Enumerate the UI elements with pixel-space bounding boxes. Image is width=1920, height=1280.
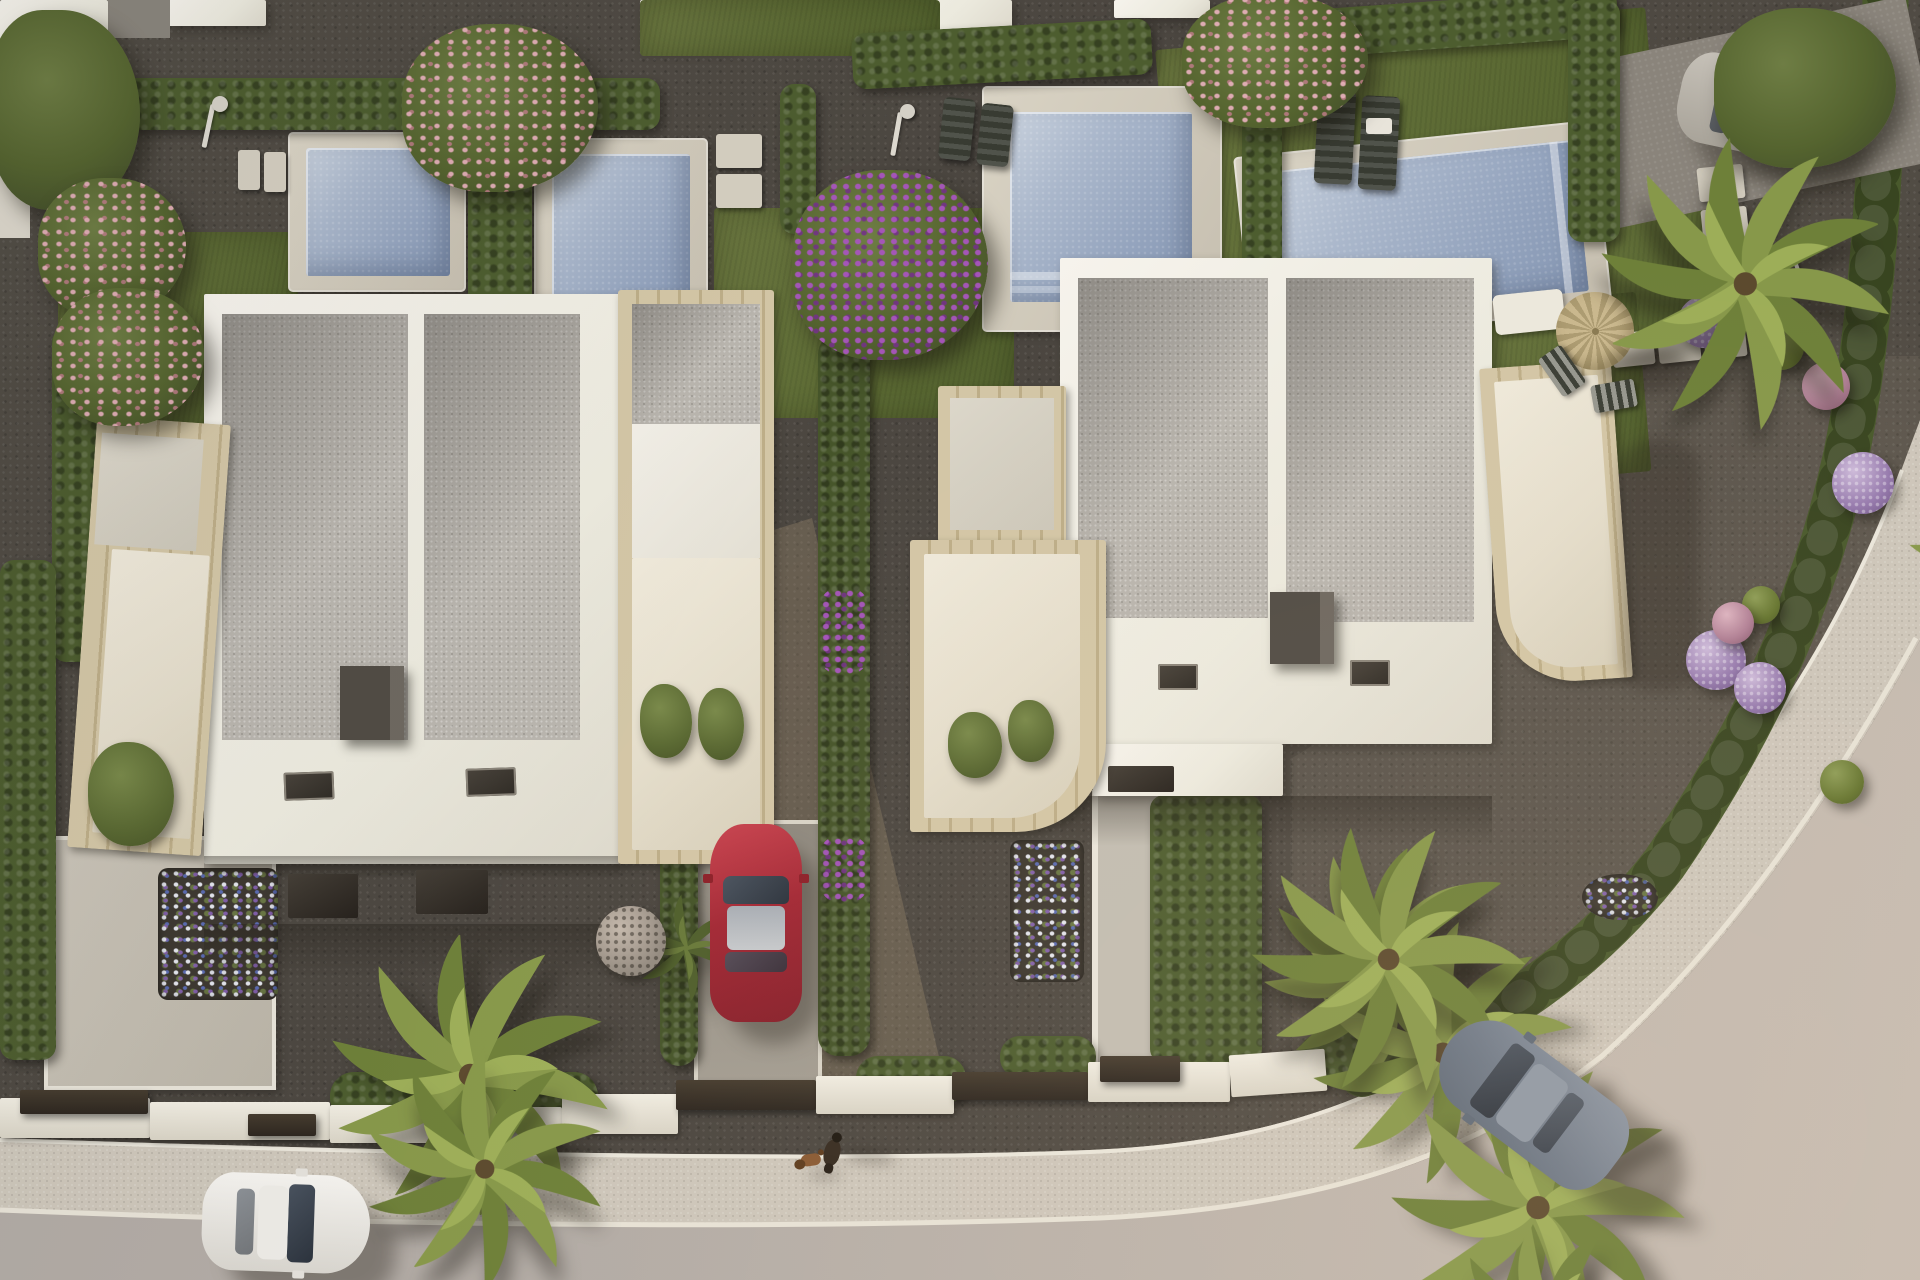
bougainvillea-on-hedge <box>820 588 868 674</box>
flowerbed <box>1010 840 1084 982</box>
villa2-roof-left <box>1078 278 1268 618</box>
stepping-stone <box>264 152 286 192</box>
villa2-pergola-lower-patio <box>924 554 1080 818</box>
front-wall-gate-cap <box>676 1080 816 1110</box>
parasol-pole <box>1592 328 1599 335</box>
dog <box>793 1148 828 1174</box>
villa2-roof-right <box>1286 278 1474 622</box>
stepping-stone <box>238 150 260 190</box>
front-wall-gate-cap <box>248 1114 316 1136</box>
villa2-skylight <box>1158 664 1198 690</box>
neighbor-roof <box>168 0 266 26</box>
villa2-pergola-right-patio <box>1494 375 1618 672</box>
villa2-chimney <box>1270 592 1334 664</box>
villa1-chimney <box>340 666 404 740</box>
car-roof <box>257 1185 290 1260</box>
car-mirror <box>799 874 809 883</box>
neighbor-roof-gravel <box>108 0 170 38</box>
scene-stage <box>0 0 1920 1280</box>
villa1-pergola-left-terrace <box>94 433 204 552</box>
villa1-roof-right <box>424 314 580 740</box>
outdoor-sofa <box>1492 288 1566 335</box>
car-windshield <box>723 876 789 904</box>
sun-lounger <box>1358 95 1401 191</box>
villa1-pergola-upper <box>632 424 760 558</box>
cypress-hedge-divider <box>818 334 870 1056</box>
hedge-divider <box>0 560 56 1060</box>
sun-lounger <box>938 96 976 161</box>
courtyard-bush <box>1008 700 1054 762</box>
villa1-skylight <box>466 767 517 797</box>
bougainvillea-on-hedge <box>820 836 868 902</box>
outdoor-shower-head <box>212 96 228 112</box>
green-shrub <box>1820 760 1864 804</box>
dog-head <box>794 1159 806 1170</box>
lavender-shrub <box>1734 662 1786 714</box>
car-mirror <box>292 1270 304 1278</box>
front-wall-gate-cap <box>952 1072 1088 1100</box>
dog-tail <box>818 1149 825 1156</box>
car-windshield <box>287 1184 316 1263</box>
stepping-stone <box>716 174 762 208</box>
courtyard-bush <box>640 684 692 758</box>
red-car <box>710 824 802 1022</box>
front-wall <box>816 1076 954 1114</box>
car-mirror <box>296 1168 308 1176</box>
flowerbed <box>1582 874 1658 920</box>
car-rear-window <box>235 1188 255 1255</box>
hedge-divider <box>1568 0 1620 242</box>
car-mirror <box>703 874 713 883</box>
white-car <box>200 1171 371 1275</box>
sun-lounger <box>976 102 1014 167</box>
stepping-stone <box>716 134 762 168</box>
lounger-towel <box>1366 118 1392 134</box>
front-wall-gate-cap <box>20 1090 148 1114</box>
pergola-planter-bush <box>88 742 174 846</box>
neighbor-roof <box>1114 0 1210 18</box>
car-rear-window <box>725 952 787 972</box>
villa2-pergola-upper-terrace <box>950 398 1054 530</box>
courtyard-bush <box>698 688 744 760</box>
car-glass-roof <box>727 906 785 950</box>
outdoor-shower-head <box>900 104 915 119</box>
villa2-door <box>1108 766 1174 792</box>
courtyard-bush <box>948 712 1002 778</box>
pink-shrub <box>1712 602 1754 644</box>
villa1-pergola-roof <box>632 304 760 424</box>
